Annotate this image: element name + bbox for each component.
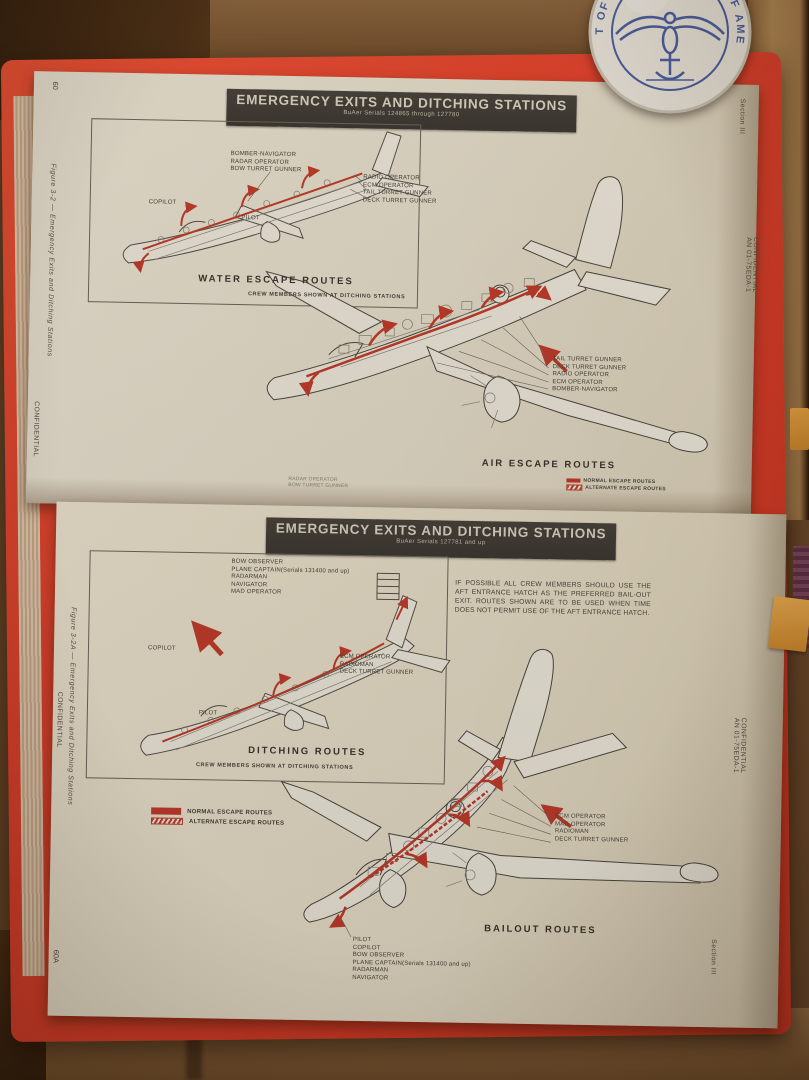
manual-page-60a: Figure 3-2A — Emergency Exits and Ditchi… xyxy=(48,502,787,1029)
orange-bookmark-tab xyxy=(790,408,809,450)
inset-crew-labels-mid: ECM OPERATOR RADIOMAN DECK TURRET GUNNER xyxy=(340,654,414,678)
crew-label: DECK TURRET GUNNER xyxy=(555,836,629,845)
legend-label: ALTERNATE ESCAPE ROUTES xyxy=(189,819,284,827)
bailout-note: IF POSSIBLE ALL CREW MEMBERS SHOULD USE … xyxy=(455,579,652,618)
inset-caption: DITCHING ROUTES xyxy=(248,745,366,758)
pilot-label: PILOT xyxy=(199,710,217,718)
orange-sticky-tab xyxy=(768,596,809,652)
bailout-routes-arrows xyxy=(331,755,572,931)
main-caption: BAILOUT ROUTES xyxy=(484,923,597,936)
crew-label: BOW TURRET GUNNER xyxy=(230,166,301,175)
alternate-route-swatch-icon xyxy=(151,817,183,825)
legend-row-normal: NORMAL ESCAPE ROUTES xyxy=(151,807,284,816)
crew-label: BOMBER-NAVIGATOR xyxy=(552,386,626,395)
main-crew-labels-right: ECM OPERATOR MAD OPERATOR RADIOMAN DECK … xyxy=(555,813,629,845)
navy-seal-pin: T OF THE NAVY STATES OF AMERICA xyxy=(586,0,754,116)
crew-label: DECK TURRET GUNNER xyxy=(340,669,414,678)
manual-page-60: 60 Figure 3-2 — Emergency Exits and Ditc… xyxy=(26,71,759,517)
crew-label: DECK TURRET GUNNER xyxy=(363,197,437,206)
legend-row-alternate: ALTERNATE ESCAPE ROUTES xyxy=(151,817,284,826)
photo-of-open-manual: 60 Figure 3-2 — Emergency Exits and Ditc… xyxy=(0,0,809,1080)
navy-seal-icon: T OF THE NAVY STATES OF AMERICA xyxy=(586,0,754,116)
escape-routes-legend: NORMAL ESCAPE ROUTES ALTERNATE ESCAPE RO… xyxy=(151,807,285,829)
copilot-label: COPILOT xyxy=(148,645,176,653)
main-crew-labels-right: TAIL TURRET GUNNER DECK TURRET GUNNER RA… xyxy=(552,356,626,395)
inset-crew-labels-top: BOW OBSERVER PLANE CAPTAIN(Serials 13140… xyxy=(231,559,350,599)
inset-crew-labels-right: RADIO OPERATOR ECM OPERATOR TAIL TURRET … xyxy=(363,174,437,206)
pilot-label: PILOT xyxy=(241,215,259,223)
main-crew-labels-bottom: PILOT COPILOT BOW OBSERVER PLANE CAPTAIN… xyxy=(352,937,471,985)
main-aircraft xyxy=(263,170,712,452)
normal-route-swatch-icon xyxy=(151,807,181,815)
copilot-label: COPILOT xyxy=(149,199,177,207)
legend-label: NORMAL ESCAPE ROUTES xyxy=(187,808,272,815)
normal-route-swatch-icon xyxy=(566,478,580,482)
inset-crew-labels-left: BOMBER-NAVIGATOR RADAR OPERATOR BOW TURR… xyxy=(230,151,302,175)
